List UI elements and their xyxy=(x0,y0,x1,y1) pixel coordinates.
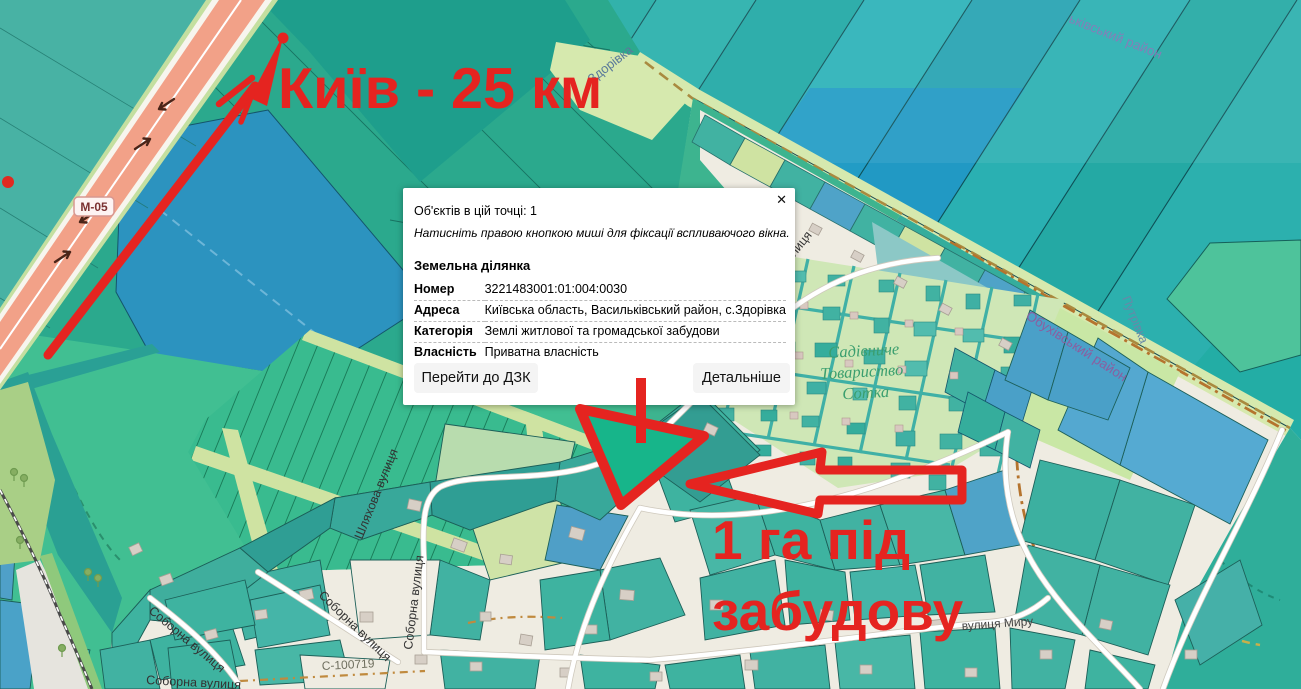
svg-text:М-05: М-05 xyxy=(80,200,108,214)
svg-text:Садівниче: Садівниче xyxy=(828,339,900,362)
svg-text:С-100719: С-100719 xyxy=(321,656,375,673)
svg-text:Сотка: Сотка xyxy=(842,382,890,403)
